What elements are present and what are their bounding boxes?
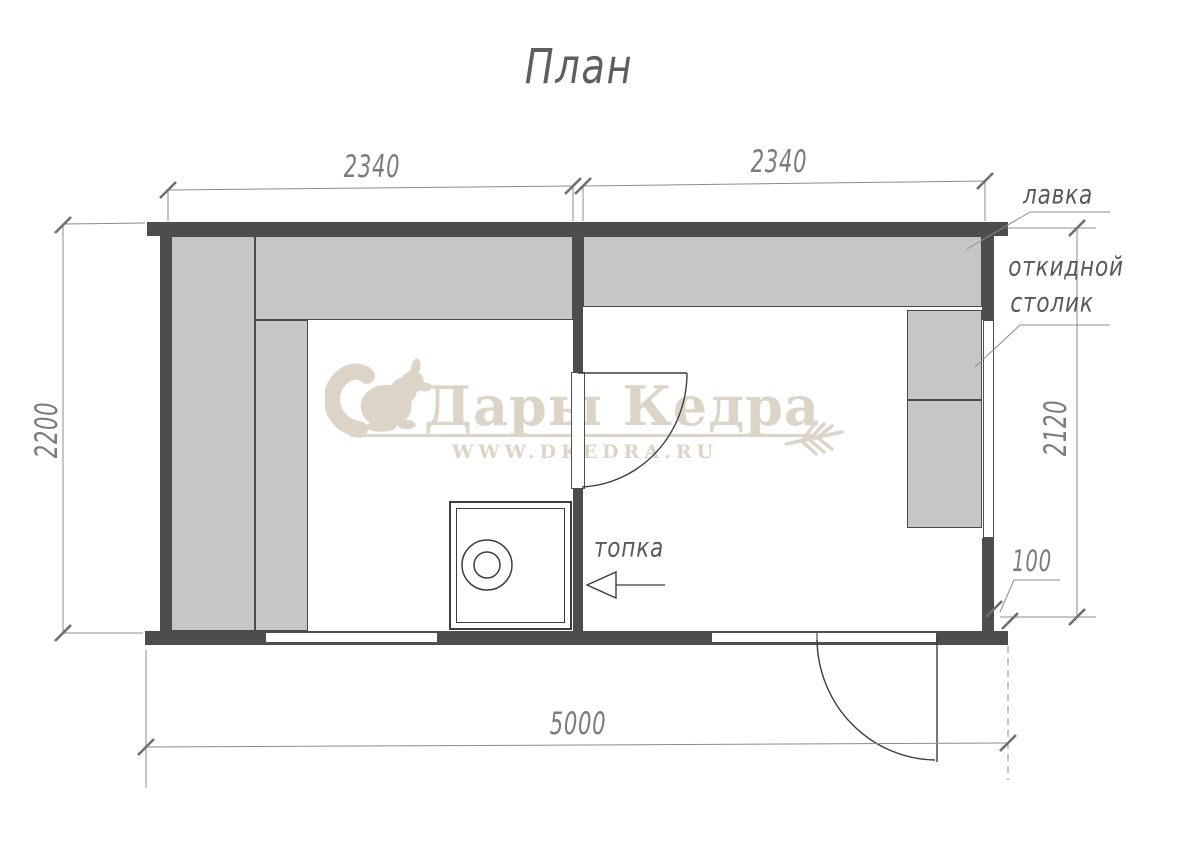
folding-table-upper <box>907 310 982 400</box>
window-bottom-left <box>265 632 438 643</box>
dim-top-right: 2340 <box>751 144 807 180</box>
dim-left-height: 2200 <box>29 402 65 458</box>
bench-top-dressing-room <box>583 236 982 307</box>
stove <box>449 501 572 630</box>
label-folding-table-line2: столик <box>1010 288 1093 319</box>
label-folding-table-line1: откидной <box>1008 252 1124 283</box>
right-wall-upper <box>982 222 994 320</box>
dim-right-height: 2120 <box>1038 400 1074 456</box>
dim-top-left: 2340 <box>344 149 400 185</box>
window-right-wall <box>983 320 994 538</box>
right-wall-lower <box>982 538 994 645</box>
interior-door-jamb <box>571 372 585 489</box>
watermark-url: WWW.DKEDRA.RU <box>452 441 718 463</box>
label-firebox: топка <box>594 533 664 564</box>
floor-plan-canvas: План Дары Кедра WWW.DKEDRA.RU <box>0 0 1200 848</box>
page-title: План <box>525 39 633 95</box>
watermark-brand: Дары Кедра <box>424 374 820 438</box>
entry-opening <box>711 632 937 643</box>
bench-left-wall <box>171 236 255 631</box>
folding-table-lower <box>907 400 982 528</box>
dim-bottom-width: 5000 <box>550 706 606 742</box>
squirrel-icon <box>325 340 437 442</box>
label-bench: лавка <box>1023 180 1093 211</box>
bench-top-steam-room <box>255 236 573 320</box>
stove-inner-outline <box>456 508 565 623</box>
left-wall <box>160 222 171 645</box>
partition-wall-lower <box>573 488 583 645</box>
bench-step <box>255 320 308 631</box>
partition-wall-upper <box>573 222 583 373</box>
dim-wall-offset: 100 <box>1012 544 1052 578</box>
